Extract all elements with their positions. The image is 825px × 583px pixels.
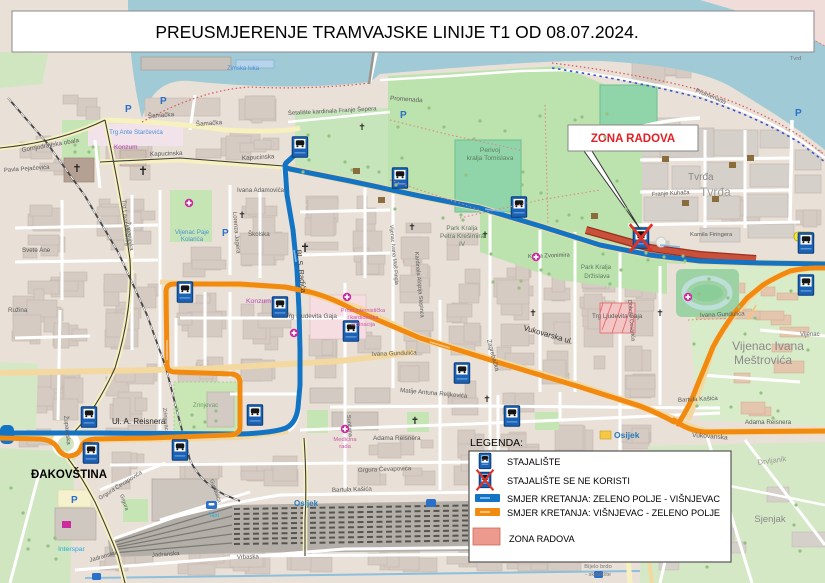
svg-text:ĐAKOVŠTINA: ĐAKOVŠTINA [31, 468, 107, 481]
svg-text:✝: ✝ [529, 308, 537, 318]
svg-text:Bartula Kašića: Bartula Kašića [332, 486, 373, 494]
svg-text:Školska: Školska [248, 231, 270, 238]
svg-text:PREUSMJERENJE TRAMVAJSKE LINIJ: PREUSMJERENJE TRAMVAJSKE LINIJE T1 OD 08… [155, 22, 638, 42]
svg-text:P: P [400, 110, 407, 121]
svg-text:Ružina: Ružina [8, 307, 28, 314]
svg-text:✝: ✝ [138, 164, 148, 178]
svg-text:Meštrovića: Meštrovića [734, 353, 792, 367]
svg-text:STAJALIŠTE: STAJALIŠTE [507, 457, 560, 467]
svg-text:LEGENDA:: LEGENDA: [470, 437, 523, 449]
svg-text:Svete Ane: Svete Ane [22, 247, 51, 254]
svg-text:Držislava: Držislava [584, 273, 610, 280]
svg-text:ordinacija: ordinacija [351, 322, 376, 328]
svg-text:Osijek: Osijek [614, 430, 640, 440]
svg-text:Prhst.internistička: Prhst.internistička [341, 308, 386, 314]
svg-text:kralja Tomislava: kralja Tomislava [467, 155, 514, 162]
svg-text:✝: ✝ [481, 230, 489, 240]
svg-text:Kapucinska: Kapucinska [150, 150, 183, 158]
svg-text:Sjenjak: Sjenjak [754, 514, 785, 525]
svg-text:Ivana Adamovića: Ivana Adamovića [237, 187, 285, 194]
svg-text:ZONA RADOVA: ZONA RADOVA [591, 133, 675, 145]
svg-text:✝: ✝ [656, 308, 664, 318]
svg-text:Zrinjevac: Zrinjevac [193, 402, 218, 409]
svg-text:✝: ✝ [483, 394, 491, 404]
svg-text:✝: ✝ [300, 241, 310, 255]
svg-text:P: P [71, 495, 78, 506]
svg-text:Interspar: Interspar [58, 546, 86, 553]
svg-text:Adama Reisnera: Adama Reisnera [745, 419, 792, 426]
svg-text:Trg Ljudevita Gaja: Trg Ljudevita Gaja [285, 313, 337, 320]
svg-text:✝: ✝ [408, 222, 416, 232]
svg-text:Vrbaska: Vrbaska [237, 554, 260, 561]
svg-text:- skladište: - skladište [585, 572, 611, 578]
svg-text:Adama Reisnera: Adama Reisnera [373, 435, 421, 442]
svg-text:Kolarića: Kolarića [181, 236, 204, 243]
svg-text:Bijelo brdo: Bijelo brdo [584, 564, 611, 570]
svg-text:Trg Ljudevita Gaja: Trg Ljudevita Gaja [592, 313, 643, 320]
svg-text:Konzum: Konzum [114, 144, 137, 151]
svg-text:SMJER KRETANJA: VIŠNJEVAC - ZE: SMJER KRETANJA: VIŠNJEVAC - ZELENO POLJE [507, 508, 720, 518]
svg-text:Trg Ante Starčevića: Trg Ante Starčevića [109, 129, 163, 136]
svg-text:ZONA RADOVA: ZONA RADOVA [509, 534, 576, 544]
svg-text:rada: rada [339, 444, 351, 450]
svg-text:Osijek: Osijek [294, 499, 319, 508]
svg-text:Vijenac Paje: Vijenac Paje [175, 229, 210, 236]
svg-text:Konzum: Konzum [246, 298, 271, 305]
svg-text:Ul. A. Reisnera: Ul. A. Reisnera [112, 417, 166, 426]
svg-text:P: P [125, 104, 132, 115]
svg-text:P: P [222, 228, 229, 239]
svg-text:IV: IV [459, 241, 466, 248]
svg-text:Petra Krešimira: Petra Krešimira [440, 233, 484, 240]
svg-text:Tvrđ: Tvrđ [790, 56, 802, 62]
svg-text:✝: ✝ [358, 122, 366, 132]
svg-text:Zimska luka: Zimska luka [227, 66, 260, 72]
svg-text:i kardiološka: i kardiološka [347, 315, 379, 321]
svg-text:✝: ✝ [238, 210, 246, 220]
svg-text:Tvrđa: Tvrđa [688, 172, 714, 183]
svg-text:Perivoj: Perivoj [480, 147, 501, 154]
svg-text:Vijenac Ivana: Vijenac Ivana [732, 339, 804, 353]
svg-text:Park Kralja: Park Kralja [446, 225, 478, 232]
svg-text:Kamila Firingera: Kamila Firingera [690, 232, 733, 238]
svg-text:Medicina: Medicina [333, 437, 357, 443]
svg-text:P: P [795, 108, 802, 119]
svg-text:P: P [160, 96, 167, 107]
svg-text:SMJER KRETANJA: ZELENO POLJE -: SMJER KRETANJA: ZELENO POLJE - VIŠNJEVAC [507, 494, 720, 504]
svg-text:STAJALIŠTE SE NE KORISTI: STAJALIŠTE SE NE KORISTI [507, 476, 630, 486]
svg-text:- Taxi: - Taxi [205, 513, 219, 519]
svg-text:Vijenac: Vijenac [800, 332, 820, 338]
svg-text:✝: ✝ [72, 163, 81, 175]
svg-text:✝: ✝ [411, 416, 419, 427]
svg-text:Park Kralja: Park Kralja [581, 264, 612, 271]
